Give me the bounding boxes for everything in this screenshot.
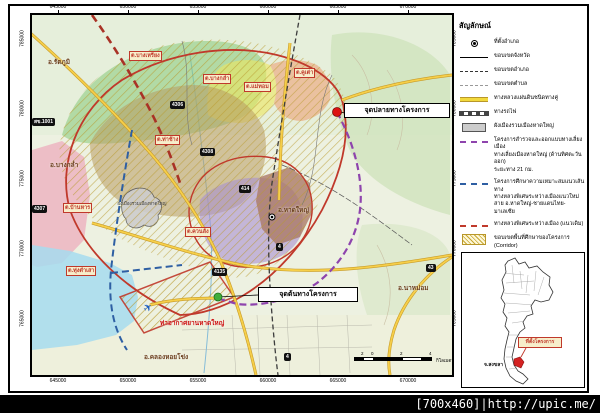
district-label: อ.บางกล่ำ bbox=[50, 160, 78, 170]
corridor-symbol bbox=[459, 235, 489, 244]
legend-title: สัญลักษณ์ bbox=[459, 20, 586, 32]
inset-map: ที่ตั้งโครงการ จ.สงขลา bbox=[461, 252, 585, 388]
road-shield: 4 bbox=[276, 243, 283, 251]
scalebar-bar bbox=[354, 357, 432, 361]
map-svg bbox=[32, 15, 452, 375]
motorway-symbol bbox=[459, 221, 489, 230]
scale-bar: 2 0 2 4 กิโลเมตร bbox=[354, 351, 454, 365]
end-point-marker bbox=[333, 108, 342, 117]
road-shield: 4308 bbox=[200, 148, 215, 156]
district-label: อ.คลองหอยโข่ง bbox=[144, 352, 188, 362]
watermark-bar: [700x460]|http://upic.me/ bbox=[0, 395, 600, 413]
railway-symbol bbox=[459, 109, 489, 118]
scalebar-number: 2 bbox=[361, 351, 364, 356]
scalebar-unit: กิโลเมตร bbox=[436, 357, 454, 364]
legend-panel: สัญลักษณ์ ที่ตั้งอำเภอ ขอบเขตจังหวัด ขอบ… bbox=[459, 20, 586, 255]
district-label: อ.นาหม่อม bbox=[398, 283, 429, 293]
district-seat-dot-core bbox=[271, 216, 274, 219]
road-shield: สข.1001 bbox=[32, 118, 55, 126]
subdistrict-label: ต.ควนลัง bbox=[185, 227, 211, 237]
tick-label-left: 785000 bbox=[21, 22, 26, 56]
subdistrict-label: ต.บ้านหาร bbox=[63, 203, 92, 213]
tick-label-left: 765000 bbox=[21, 302, 26, 336]
map-frame: สข.1001 4306 4307 4308 414 4 4135 43 4 อ… bbox=[30, 13, 454, 377]
legend-item: ขอบเขตตำบล bbox=[459, 81, 586, 90]
thailand-outline bbox=[501, 258, 553, 384]
tick-label-left: 775000 bbox=[21, 162, 26, 196]
start-point-marker bbox=[214, 293, 222, 301]
district-label: อ.รัตภูมิ bbox=[48, 57, 70, 67]
legend-item: ทางหลวงพิเศษระหว่างเมือง (แนวเดิม) bbox=[459, 221, 586, 230]
province-boundary-symbol bbox=[459, 53, 489, 62]
legend-item: โครงการศึกษาความเหมาะสมแนวเส้นทาง ทางหลว… bbox=[459, 179, 586, 216]
road-shield: 4 bbox=[284, 353, 291, 361]
city-plan-label: ผังเมืองรวมเมืองหาดใหญ่ bbox=[112, 201, 172, 206]
highway-symbol bbox=[459, 95, 489, 104]
road-shield: 43 bbox=[426, 264, 436, 272]
study-route-symbol bbox=[459, 179, 489, 188]
road-shield: 4135 bbox=[212, 268, 227, 276]
inset-leader-line bbox=[521, 348, 526, 357]
page: 645000 650000 655000 660000 665000 67000… bbox=[0, 0, 600, 413]
subdistrict-label: ต.บางเหรียง bbox=[129, 51, 162, 61]
callout-end-point: จุดปลายทางโครงการ bbox=[344, 103, 450, 118]
scalebar-number: 0 bbox=[371, 351, 374, 356]
scalebar-number: 4 bbox=[429, 351, 432, 356]
topo-forest bbox=[331, 32, 450, 215]
district-label: อ.หาดใหญ่ bbox=[278, 205, 309, 215]
inset-province-label: จ.สงขลา bbox=[484, 361, 503, 369]
legend-item: ขอบเขตพื้นที่ศึกษาของโครงการ (Corridor) bbox=[459, 235, 586, 250]
legend-item: ทางหลวงแผ่นดินชนิดทางคู่ bbox=[459, 95, 586, 104]
legend-item: ทางรถไฟ bbox=[459, 109, 586, 118]
subdistrict-label: ต.แม่ทอม bbox=[244, 82, 271, 92]
legend-item: ที่ตั้งอำเภอ bbox=[459, 39, 586, 48]
airport-label: ท่าอากาศยานหาดใหญ่ bbox=[160, 318, 224, 328]
subdistrict-label: ต.ทุ่งตำเสา bbox=[66, 266, 96, 276]
subdistrict-label: ต.บางกล่ำ bbox=[203, 74, 231, 84]
subdistrict-boundary-symbol bbox=[459, 81, 489, 90]
tick-label-bottom: 645000 bbox=[43, 379, 73, 384]
tick-label-left: 770000 bbox=[21, 232, 26, 266]
songkhla-province-highlight bbox=[514, 357, 524, 368]
tick-label-bottom: 670000 bbox=[393, 379, 423, 384]
city-plan-symbol bbox=[459, 123, 489, 132]
legend-item: โครงการสำรวจและออกแบบทางเลี่ยงเมือง ทางเ… bbox=[459, 137, 586, 174]
scalebar-number: 2 bbox=[400, 351, 403, 356]
district-seat-symbol bbox=[459, 39, 489, 48]
road-shield: 414 bbox=[239, 185, 251, 193]
legend-item: ผังเมืองรวมเมืองหาดใหญ่ bbox=[459, 123, 586, 132]
tick-label-bottom: 665000 bbox=[323, 379, 353, 384]
road-shield: 4306 bbox=[170, 101, 185, 109]
tick-label-bottom: 655000 bbox=[183, 379, 213, 384]
tick-label-bottom: 660000 bbox=[253, 379, 283, 384]
subdistrict-label: ต.คูเต่า bbox=[294, 68, 315, 78]
legend-item: ขอบเขตอำเภอ bbox=[459, 67, 586, 76]
road-shield: 4307 bbox=[32, 205, 47, 213]
subdistrict-label: ต.ท่าช้าง bbox=[155, 135, 180, 145]
project-route-symbol bbox=[459, 137, 489, 146]
callout-start-point: จุดต้นทางโครงการ bbox=[258, 287, 358, 302]
tick-label-left: 780000 bbox=[21, 92, 26, 126]
tick-label-bottom: 650000 bbox=[113, 379, 143, 384]
district-boundary-symbol bbox=[459, 67, 489, 76]
legend-item: ขอบเขตจังหวัด bbox=[459, 53, 586, 62]
inset-callout: ที่ตั้งโครงการ bbox=[518, 337, 562, 348]
thailand-inset-svg bbox=[462, 253, 584, 387]
